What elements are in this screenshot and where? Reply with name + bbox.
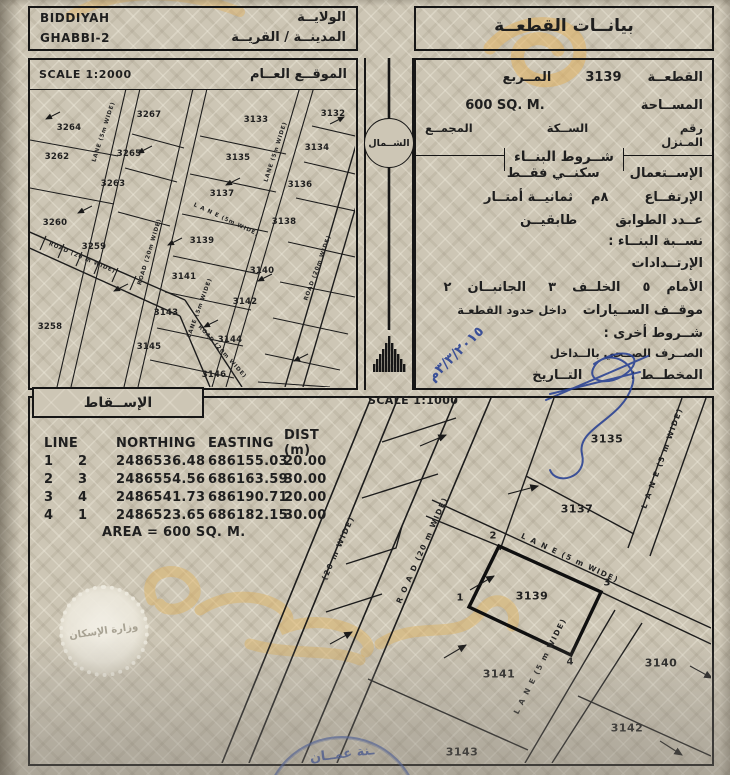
overview-plot-label: 3143 [154, 308, 178, 318]
coordinate-cell: 1 [78, 508, 116, 523]
front-label: الأمام [666, 280, 703, 295]
complex-label: المجمــع [425, 121, 473, 135]
coordinate-cell: 686190.71 [208, 490, 284, 505]
overview-plot-label: 3142 [233, 297, 257, 307]
back-label: الخلــف [572, 280, 620, 295]
area-total: AREA = 600 SQ. M. [44, 525, 344, 540]
coordinate-cell: 4 [78, 490, 116, 505]
coordinate-cell: 30.00 [284, 472, 344, 487]
floors-value: طابقيــن [520, 213, 577, 228]
overview-plot-label: 3132 [321, 109, 345, 119]
coordinate-cell: 686155.03 [208, 454, 284, 469]
coordinate-table: LINE NORTHING EASTING DIST (m) 122486536… [44, 434, 344, 540]
sides-label: الجانبــان [467, 280, 526, 295]
north-compass-circle: الشــمال [364, 118, 414, 168]
overview-plot-label: 3141 [172, 272, 196, 282]
overview-plot-label: 3137 [210, 189, 234, 199]
overview-plot-label: 3259 [82, 242, 106, 252]
krooki-document: BIDDIYAH الولايــة GHABBI-2 المدينــة / … [0, 0, 730, 775]
ministry-stamp-text: وزارة الإسكان [69, 621, 139, 642]
overview-plot-label: 3260 [43, 218, 67, 228]
overview-scale: SCALE 1:2000 [39, 68, 132, 81]
coordinate-cell: 2486541.73 [116, 490, 208, 505]
plot-label: القطعــة [648, 70, 703, 85]
coordinate-cell: 2486523.65 [116, 508, 208, 523]
parking-value: داخل حدود القطعـة [457, 303, 567, 317]
detail-plot-label: 3137 [561, 503, 594, 516]
overview-plot-label: 3136 [288, 180, 312, 190]
coordinate-cell: 3 [78, 472, 116, 487]
coordinate-cell: 2 [44, 472, 78, 487]
coordinate-cell: 3 [44, 490, 78, 505]
front-value: ٥ [642, 280, 650, 295]
coordinate-cell: 2486554.56 [116, 472, 208, 487]
col-northing: NORTHING [116, 436, 208, 451]
plot-number: 3139 [585, 70, 621, 85]
overview-plot-label: 3265 [117, 149, 141, 159]
area-value: 600 SQ. M. [465, 98, 544, 113]
location-box: BIDDIYAH الولايــة GHABBI-2 المدينــة / … [28, 6, 358, 51]
detail-plot-label: 3140 [645, 657, 678, 670]
usage-value: سكنــي فقــط [507, 166, 600, 181]
floors-label: عــدد الطوابق [615, 213, 703, 228]
coordinate-rows: 122486536.48686155.0320.00232486554.5668… [44, 452, 344, 524]
detail-corner-label: 4 [567, 657, 574, 668]
overview-plot-label: 3262 [45, 152, 69, 162]
detail-plot-label: 3139 [516, 590, 549, 603]
coordinate-row: 122486536.48686155.0320.00 [44, 452, 344, 470]
overview-title: الموقــع العــام [250, 67, 347, 82]
overview-plot-label: 3267 [137, 110, 161, 120]
projection-title-box: الإســقاط [32, 387, 204, 418]
height-value: ٨م [591, 190, 608, 205]
north-arrow-graphic [366, 58, 411, 390]
overview-plot-label: 3258 [38, 322, 62, 332]
overview-plot-label: 3135 [226, 153, 250, 163]
col-easting: EASTING [208, 436, 284, 451]
coordinate-row: 412486523.65686182.1530.00 [44, 506, 344, 524]
detail-scale: SCALE 1:1000 [368, 394, 458, 407]
detail-plot-label: 3135 [591, 433, 624, 446]
overview-plot-label: 3133 [244, 115, 268, 125]
detail-corner-label: 1 [457, 593, 464, 604]
plot-details-box: القطعــة 3139 المــربع المســاحة 600 SQ.… [414, 58, 714, 390]
setbacks-label: الإرتــدادات [631, 256, 703, 271]
state-value: BIDDIYAH [40, 11, 110, 25]
coordinate-cell: 686182.15 [208, 508, 284, 523]
overview-map: 3264326731333132326232653135313432633137… [30, 90, 355, 387]
overview-map-header: SCALE 1:2000 الموقــع العــام [30, 60, 356, 90]
overview-map-box: SCALE 1:2000 الموقــع العــام [28, 58, 358, 390]
overview-plot-label: 3263 [101, 179, 125, 189]
coordinate-row: 342486541.73686190.7120.00 [44, 488, 344, 506]
town-value: GHABBI-2 [40, 31, 110, 45]
projection-title: الإســقاط [84, 395, 152, 411]
back-value: ٣ [548, 280, 556, 295]
coordinate-cell: 4 [44, 508, 78, 523]
height-label: الإرتفــاع [644, 190, 703, 205]
coordinate-table-header: LINE NORTHING EASTING DIST (m) [44, 434, 344, 452]
street-label: الســكة [547, 121, 589, 135]
overview-plot-label: 3140 [250, 266, 274, 276]
ministry-embossed-stamp: وزارة الإسكان [60, 586, 148, 676]
other-terms-label: شــروط أخرى : [604, 326, 703, 341]
coordinate-cell: 30.00 [284, 508, 344, 523]
detail-plot-label: 3141 [483, 668, 516, 681]
coordinate-row: 232486554.56686163.5930.00 [44, 470, 344, 488]
overview-plot-label: 3146 [202, 370, 226, 380]
coordinate-cell: 1 [44, 454, 78, 469]
area-label: المســاحة [641, 98, 703, 113]
plot-info-title-box: بيانــات القطعــة [414, 6, 714, 51]
parking-label: موقــف الســيارات [583, 303, 703, 318]
detail-plot-label: 3142 [611, 722, 644, 735]
sides-value: ٢ [444, 280, 452, 295]
projection-box: الإســقاط SCALE 1:1000 LINE NORTHING EAS… [28, 396, 714, 766]
overview-plot-label: 3264 [57, 123, 81, 133]
coordinate-cell: 20.00 [284, 454, 344, 469]
coordinate-cell: 686163.59 [208, 472, 284, 487]
state-label: الولايــة [297, 10, 346, 25]
coordinate-cell: 20.00 [284, 490, 344, 505]
municipal-stamp-text: ـنة عمــان [309, 743, 375, 766]
north-strip: الشــمال [364, 58, 414, 390]
overview-plot-label: 3138 [272, 217, 296, 227]
overview-plot-label: 3144 [218, 335, 242, 345]
overview-plot-label: 3139 [190, 236, 214, 246]
usage-label: الإســتعمال [630, 166, 703, 181]
coordinate-cell: 2 [78, 454, 116, 469]
town-label: المدينــة / القريــة [231, 30, 346, 45]
square-label: المــربع [503, 70, 552, 85]
ratio-label: نســبة البنــاء : [608, 234, 703, 249]
height-value-text: ثمانيــة أمتــار [484, 190, 573, 205]
plot-info-title: بيانــات القطعــة [416, 16, 712, 36]
north-label: الشــمال [368, 138, 409, 149]
col-line: LINE [44, 436, 116, 451]
detail-corner-label: 2 [490, 531, 497, 542]
coordinate-cell: 2486536.48 [116, 454, 208, 469]
overview-plot-label: 3134 [305, 143, 329, 153]
detail-plot-label: 3143 [446, 746, 479, 759]
overview-plot-label: 3145 [137, 342, 161, 352]
